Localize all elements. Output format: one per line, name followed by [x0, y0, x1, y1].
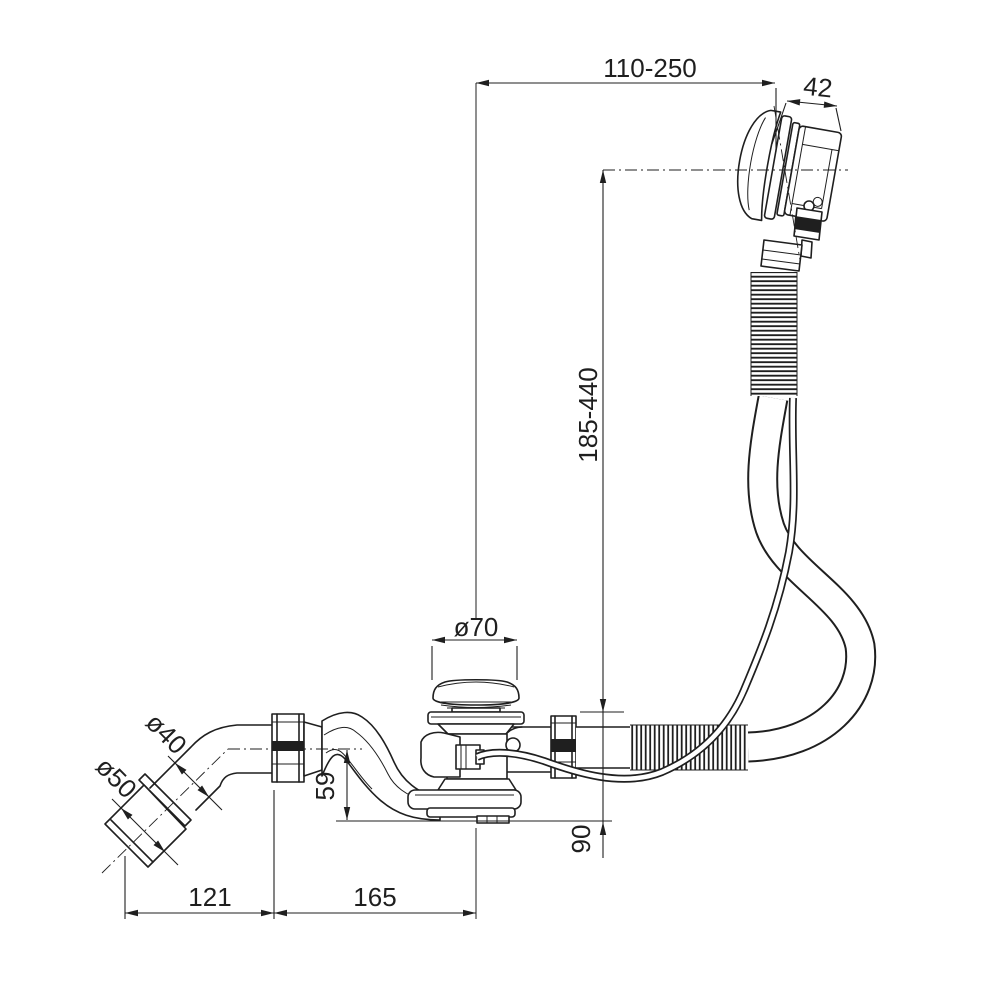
dim-socket-length: 121 — [188, 882, 231, 912]
dimension-110-250: 110-250 — [476, 53, 776, 152]
dim-overflow-reach: 110-250 — [603, 53, 697, 83]
overflow-knob — [730, 107, 844, 232]
outlet-compression-nut — [272, 714, 304, 782]
dim-overflow-hose-length: 185-440 — [573, 367, 603, 462]
dimension-185-440: 185-440 — [573, 170, 624, 712]
rocker-housing — [421, 732, 460, 777]
overflow-hose — [748, 398, 861, 747]
waste-plug-cap — [433, 680, 519, 705]
corrugated-hose-horizontal — [630, 725, 748, 770]
dim-waste-body-drop: 90 — [566, 825, 596, 854]
dim-outlet-axis-to-base: 59 — [310, 772, 340, 801]
waste-flange — [428, 712, 524, 724]
hose-nut — [761, 240, 802, 271]
dimension-o70: ø70 — [432, 612, 517, 680]
dim-overflow-head-depth: 42 — [802, 71, 834, 104]
dim-plug-cap-diameter: ø70 — [454, 612, 499, 642]
dim-outlet-to-drain-center: 165 — [353, 882, 396, 912]
dimension-165: 165 — [274, 882, 476, 916]
technical-drawing-canvas: 110-250 42 185-440 90 ø70 ø40 — [0, 0, 1000, 1000]
waste-lower-dish — [408, 790, 521, 809]
corrugated-hose-vertical — [751, 272, 797, 396]
